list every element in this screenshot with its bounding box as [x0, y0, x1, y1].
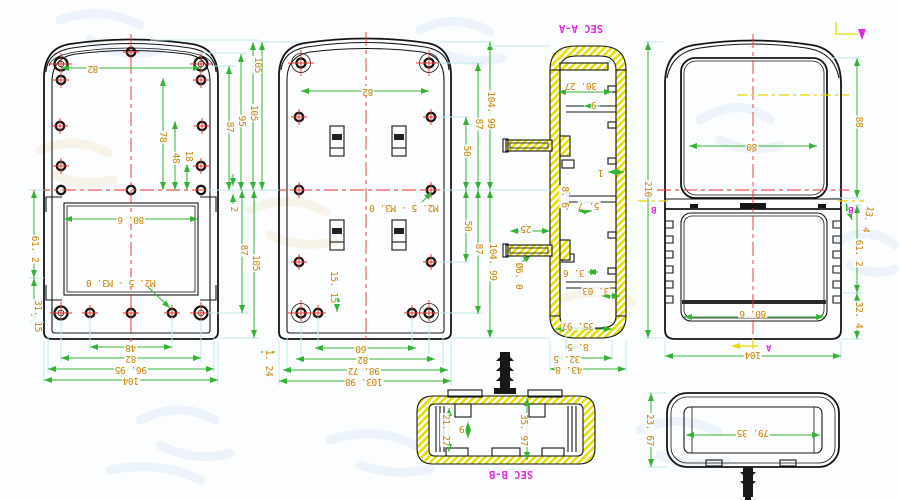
barb-fitting-bottom [740, 467, 756, 500]
view4-assembled-geometry [657, 34, 849, 350]
dim-87-lower-right: 87 [238, 244, 248, 257]
dim-30-27: 30. 27 [564, 80, 598, 90]
dim-9-bb: 9 [458, 423, 465, 433]
dim-95: 95 [236, 115, 246, 128]
dim-87-upper-right: 87 [224, 121, 234, 134]
dim-79-35: 79. 35 [736, 427, 770, 437]
dim-104: 104 [122, 375, 140, 385]
dim-210: 210 [642, 180, 652, 198]
background-watermark [40, 14, 895, 480]
section-bb-title: SEC B-B [488, 469, 534, 479]
view1-bottom-shell-geometry [36, 34, 260, 348]
dim-48-inner: 48 [170, 152, 180, 165]
dim-31-15: 31. 15 [32, 299, 42, 333]
thread-note-view2: M2. 5 - M3. 0 [368, 202, 439, 212]
dim-1-24: 1. 24 [263, 349, 273, 378]
dim-61-2: 61. 2 [29, 235, 39, 264]
dim-25-pin: 25 [520, 223, 533, 233]
dim-80-6-view4: 80. 6 [739, 308, 768, 318]
dim-15-15: 15. 15 [328, 270, 338, 304]
dim-3-6: 3. 6 [562, 267, 585, 277]
snap-slots [330, 126, 406, 250]
dim-80: 80 [746, 141, 759, 151]
dim-80-6-view1: 80. 6 [117, 214, 146, 224]
dim-43-8: 43. 8 [555, 364, 584, 374]
dim-82-top-view2: 82 [362, 86, 375, 96]
thread-note-view1: M2. 5 - M3. 0 [85, 277, 156, 287]
dim-82-top-view1: 82 [87, 63, 100, 73]
dim-50-bottom: 50 [462, 220, 472, 233]
dim-105-upper: 105 [248, 104, 258, 122]
dim-23-67: 23. 67 [644, 413, 654, 447]
cad-drawing: .k{stroke:#151515;fill:none;stroke-width… [0, 0, 900, 500]
dim-32-4: 32. 4 [853, 301, 863, 330]
dim-dia-6-0: Ø6. 0 [513, 262, 523, 291]
barb-fitting-top [494, 352, 516, 394]
dim-32-5: 32. 5 [553, 353, 582, 363]
dim-105-lower: 105 [250, 254, 260, 272]
dim-82-bottom-view2: 82 [357, 354, 370, 364]
dim-8-6: 8. 6 [559, 185, 569, 208]
dim-35-97-bb: 35. 97 [518, 413, 528, 447]
dim-18: 18 [183, 150, 193, 163]
dim-87-top-view2: 87 [473, 118, 483, 131]
dim-3-03: 3. 03 [582, 285, 611, 295]
dim-82-bottom: 82 [125, 353, 138, 363]
dim-103-98: 103. 98 [344, 376, 383, 386]
cut-label-b-right: B [847, 204, 854, 214]
dim-5-7: 5. 7 [577, 200, 600, 210]
dim-104-view4: 104 [744, 349, 762, 359]
dim-48-bottom: 48 [125, 342, 138, 352]
dim-60: 60 [355, 343, 368, 353]
dim-61-2-view4: 61. 2 [853, 239, 863, 268]
cut-label-a-bottom: A [765, 342, 772, 352]
dim-105-left-view2: 105 [252, 56, 262, 74]
dim-35-97-aa: 35. 97 [561, 320, 595, 330]
dim-78: 78 [157, 131, 167, 144]
dim-88: 88 [853, 116, 863, 129]
dim-87-bottom-view2: 87 [473, 243, 483, 256]
dim-104-99-bottom: 104. 99 [487, 242, 497, 281]
dim-1: 1 [597, 167, 604, 177]
dim-21-27: 21. 27 [440, 413, 450, 447]
dim-96-95: 96. 95 [114, 364, 148, 374]
dim-8-5: 8. 5 [566, 341, 589, 351]
view6-side-geometry [667, 393, 839, 500]
dim-9-aa: 9 [590, 99, 597, 109]
dim-104-99-top: 104. 99 [485, 90, 495, 129]
dim-50-top: 50 [461, 145, 471, 158]
section-aa-title: SEC A-A [558, 23, 604, 33]
cut-label-b-left: B [650, 204, 657, 214]
dim-2: 2 [228, 205, 238, 212]
dim-98-72: 98. 72 [347, 365, 381, 375]
